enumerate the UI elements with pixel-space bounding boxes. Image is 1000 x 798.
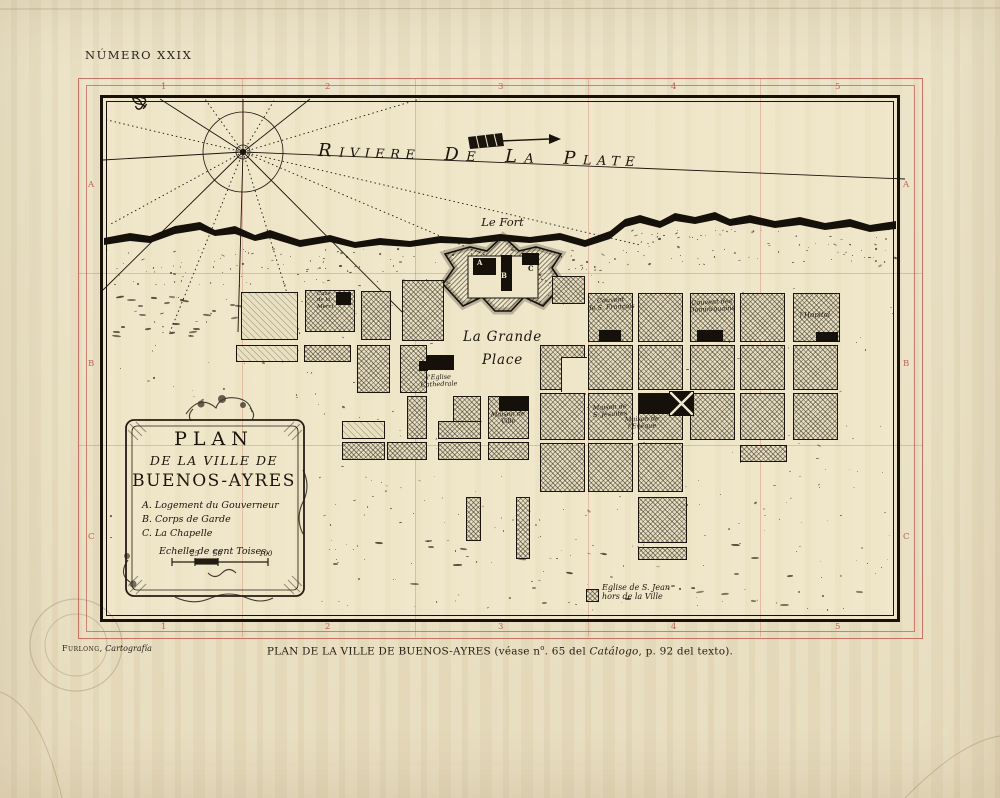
grid-number-top: 4	[671, 82, 676, 92]
figure-caption: PLAN DE LA VILLE DE BUENOS-AYRES (véase …	[0, 644, 1000, 658]
grid-number-bottom: 3	[498, 622, 503, 632]
grid-letter-right: C	[903, 532, 910, 542]
grid-number-top: 3	[498, 82, 503, 92]
grid-number-bottom: 4	[671, 622, 676, 632]
grid-letter-right: B	[903, 359, 909, 369]
grid-letter-right: A	[903, 180, 909, 190]
grid-number-top: 2	[325, 82, 330, 92]
grid-number-top: 5	[835, 82, 840, 92]
grid-number-top: 1	[161, 82, 166, 92]
plate-number: NÚMERO XXIX	[85, 48, 192, 62]
grid-letter-left: C	[88, 532, 95, 542]
grid-number-bottom: 1	[161, 622, 166, 632]
scanned-map-plate: NÚMERO XXIX	[0, 0, 1000, 798]
grid-number-bottom: 5	[835, 622, 840, 632]
grid-letter-left: A	[88, 180, 94, 190]
grid-number-bottom: 2	[325, 622, 330, 632]
plate-border-inner	[86, 85, 915, 632]
grid-letter-left: B	[88, 359, 94, 369]
